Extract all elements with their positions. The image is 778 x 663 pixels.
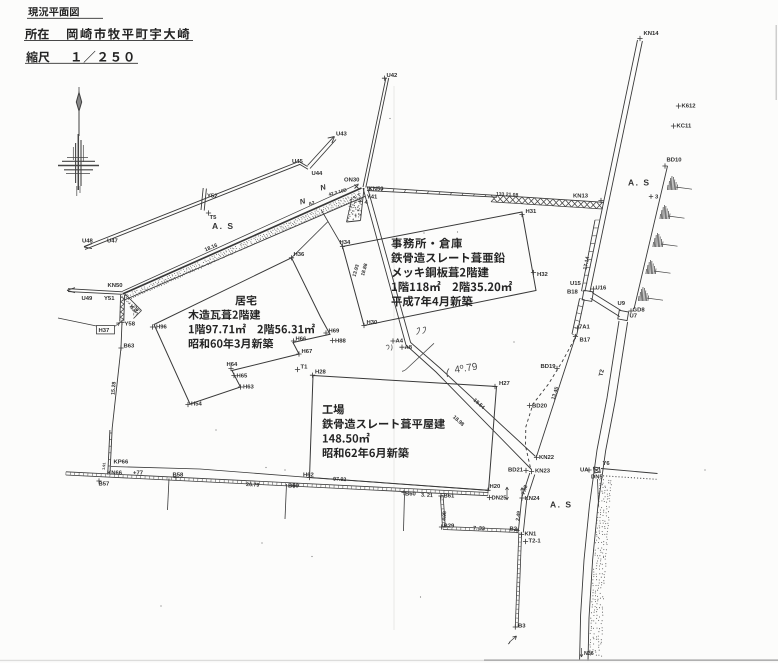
svg-text:3. 21: 3. 21 <box>421 493 433 500</box>
svg-text:B61: B61 <box>444 494 456 500</box>
svg-text:UA: UA <box>580 468 589 474</box>
svg-text:H66: H66 <box>296 337 308 343</box>
svg-text:B59: B59 <box>288 484 300 490</box>
svg-text:U48: U48 <box>82 239 94 245</box>
svg-text:Y6: Y6 <box>603 461 611 467</box>
svg-text:B63: B63 <box>124 344 136 350</box>
svg-text:A. S: A. S <box>550 500 573 510</box>
svg-text:H88: H88 <box>335 339 347 345</box>
svg-text:15.28: 15.28 <box>111 381 118 395</box>
svg-text:H96: H96 <box>156 325 168 331</box>
svg-text:U47: U47 <box>107 239 119 245</box>
svg-text:U43: U43 <box>336 132 348 138</box>
svg-text:KN22: KN22 <box>539 455 555 461</box>
svg-text:U44: U44 <box>312 171 324 177</box>
svg-text:A. S: A. S <box>628 178 651 188</box>
svg-text:H36: H36 <box>294 252 306 258</box>
svg-text:H64: H64 <box>227 362 239 368</box>
svg-text:KN14: KN14 <box>644 31 660 37</box>
svg-text:H65: H65 <box>237 374 249 380</box>
svg-text:KN66: KN66 <box>107 471 123 477</box>
svg-text:B17: B17 <box>580 338 592 344</box>
svg-text:7. 33: 7. 33 <box>473 526 485 533</box>
svg-text:U45: U45 <box>292 159 304 165</box>
svg-text:B60: B60 <box>405 492 417 498</box>
svg-text:H20: H20 <box>490 484 502 490</box>
svg-text:H28: H28 <box>315 370 327 376</box>
svg-text:H54: H54 <box>191 402 203 408</box>
svg-text:T2-1: T2-1 <box>529 539 542 545</box>
svg-text:A4: A4 <box>396 339 404 345</box>
svg-text:H62: H62 <box>303 473 315 479</box>
svg-text:Y51: Y51 <box>104 296 115 302</box>
svg-text:U7: U7 <box>630 314 638 320</box>
svg-text:Y41: Y41 <box>367 195 378 201</box>
svg-text:4.98: 4.98 <box>442 511 449 521</box>
svg-text:H32: H32 <box>537 272 549 278</box>
svg-text:H27: H27 <box>499 381 511 387</box>
svg-text:N36: N36 <box>584 651 594 657</box>
svg-text:H31: H31 <box>526 209 538 215</box>
svg-text:+77: +77 <box>133 471 144 477</box>
svg-text:ON30: ON30 <box>344 178 360 184</box>
svg-text:BD20: BD20 <box>532 404 548 410</box>
svg-text:H34: H34 <box>340 240 352 246</box>
svg-text:U49: U49 <box>82 296 94 302</box>
svg-text:7A1: 7A1 <box>579 325 591 331</box>
svg-text:KN50: KN50 <box>369 187 385 193</box>
svg-text:A. S: A. S <box>212 221 235 231</box>
svg-text:BD10: BD10 <box>667 158 683 164</box>
svg-text:DN25: DN25 <box>492 496 508 502</box>
svg-text:KN50: KN50 <box>108 283 124 289</box>
svg-text:U16: U16 <box>596 286 608 292</box>
svg-text:KN1: KN1 <box>525 532 538 538</box>
svg-text:133 21.08: 133 21.08 <box>496 192 519 199</box>
svg-text:Y58: Y58 <box>125 322 136 328</box>
svg-text:KP66: KP66 <box>114 460 129 466</box>
svg-text:H30: H30 <box>367 320 379 326</box>
svg-text:B58: B58 <box>173 473 185 479</box>
svg-text:KN13: KN13 <box>573 194 589 200</box>
svg-text:KC11: KC11 <box>677 124 692 130</box>
svg-text:B2: B2 <box>510 527 518 533</box>
svg-text:B3: B3 <box>518 624 526 630</box>
svg-text:BD21: BD21 <box>508 468 524 474</box>
svg-text:B18: B18 <box>567 290 579 296</box>
svg-text:Y52: Y52 <box>207 194 218 200</box>
svg-text:KN24: KN24 <box>525 496 541 502</box>
svg-text:U15: U15 <box>570 281 582 287</box>
svg-text:H37: H37 <box>99 328 111 334</box>
svg-text:H63: H63 <box>243 385 255 391</box>
svg-text:KN23: KN23 <box>535 469 551 475</box>
svg-text:U42: U42 <box>387 73 399 79</box>
svg-text:H67: H67 <box>302 349 314 355</box>
svg-text:A8: A8 <box>405 345 413 351</box>
svg-text:97.92: 97.92 <box>333 477 347 484</box>
svg-text:T1: T1 <box>301 365 309 371</box>
svg-text:DN5: DN5 <box>591 475 604 481</box>
svg-text:26.79: 26.79 <box>246 482 260 489</box>
svg-text:1.91: 1.91 <box>102 462 107 470</box>
svg-text:B57: B57 <box>99 482 111 488</box>
svg-text:B29: B29 <box>444 524 456 530</box>
svg-text:H69: H69 <box>329 329 341 335</box>
svg-text:U9: U9 <box>618 301 626 307</box>
svg-text:K612: K612 <box>682 104 697 110</box>
svg-text:BD19: BD19 <box>541 364 557 370</box>
